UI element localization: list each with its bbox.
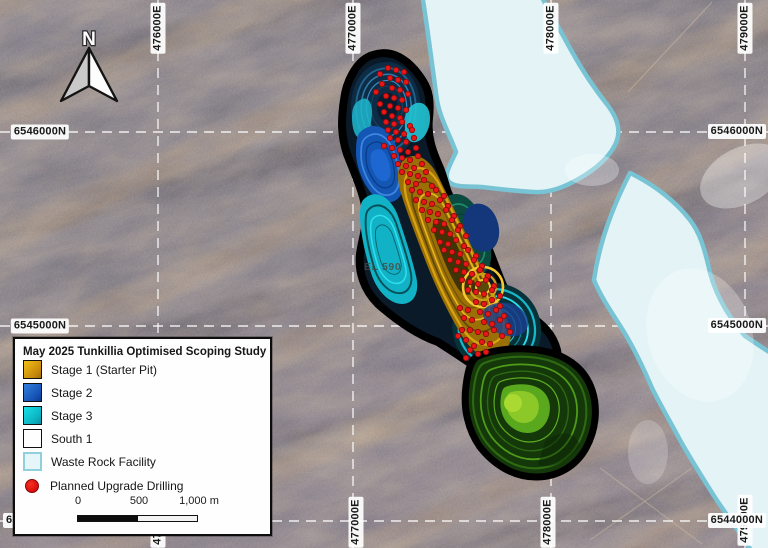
drill-dot-swatch — [25, 479, 39, 493]
legend-panel: May 2025 Tunkillia Optimised Scoping Stu… — [13, 337, 272, 536]
grid-label-easting: 477000E — [346, 2, 361, 53]
legend-item-label: Planned Upgrade Drilling — [50, 479, 183, 493]
stage2-swatch — [23, 383, 42, 402]
grid-label-northing: 6545000N — [708, 318, 766, 333]
legend-title: May 2025 Tunkillia Optimised Scoping Stu… — [23, 346, 266, 358]
grid-label-northing: 6546000N — [708, 124, 766, 139]
grid-label-northing: 6544000N — [708, 513, 766, 528]
scalebar-filled-segment — [78, 516, 138, 521]
legend-item-stage1: Stage 1 (Starter Pit) — [23, 360, 157, 379]
legend-item-drilling: Planned Upgrade Drilling — [23, 476, 183, 495]
legend-item-label: Stage 3 — [51, 409, 92, 423]
tenement-label: EL 590 — [364, 261, 401, 273]
grid-label-northing: 6545000N — [11, 319, 69, 334]
scalebar-tick: 500 — [130, 495, 148, 507]
scalebar — [77, 515, 198, 522]
grid-label-easting: 478000E — [541, 496, 556, 547]
stage1-swatch — [23, 360, 42, 379]
scalebar-tick: 0 — [75, 495, 81, 507]
legend-item-south1: South 1 — [23, 429, 92, 448]
map-canvas[interactable]: N 476000E 476000E 477000E 478000E 479000… — [0, 0, 768, 548]
grid-label-easting: 479000E — [738, 2, 753, 53]
south1-swatch — [23, 429, 42, 448]
legend-item-label: Stage 2 — [51, 386, 92, 400]
legend-item-label: South 1 — [51, 432, 92, 446]
legend-item-label: Stage 1 (Starter Pit) — [51, 363, 157, 377]
legend-item-label: Waste Rock Facility — [51, 455, 156, 469]
grid-label-northing: 6546000N — [11, 125, 69, 140]
legend-item-stage3: Stage 3 — [23, 406, 92, 425]
grid-label-easting: 476000E — [151, 2, 166, 53]
legend-item-stage2: Stage 2 — [23, 383, 92, 402]
grid-label-easting: 477000E — [349, 496, 364, 547]
stage3-swatch — [23, 406, 42, 425]
scalebar-tick: 1,000 m — [179, 495, 219, 507]
legend-item-waste-rock: Waste Rock Facility — [23, 452, 156, 471]
waste-rock-swatch — [23, 452, 42, 471]
grid-label-easting: 478000E — [544, 2, 559, 53]
